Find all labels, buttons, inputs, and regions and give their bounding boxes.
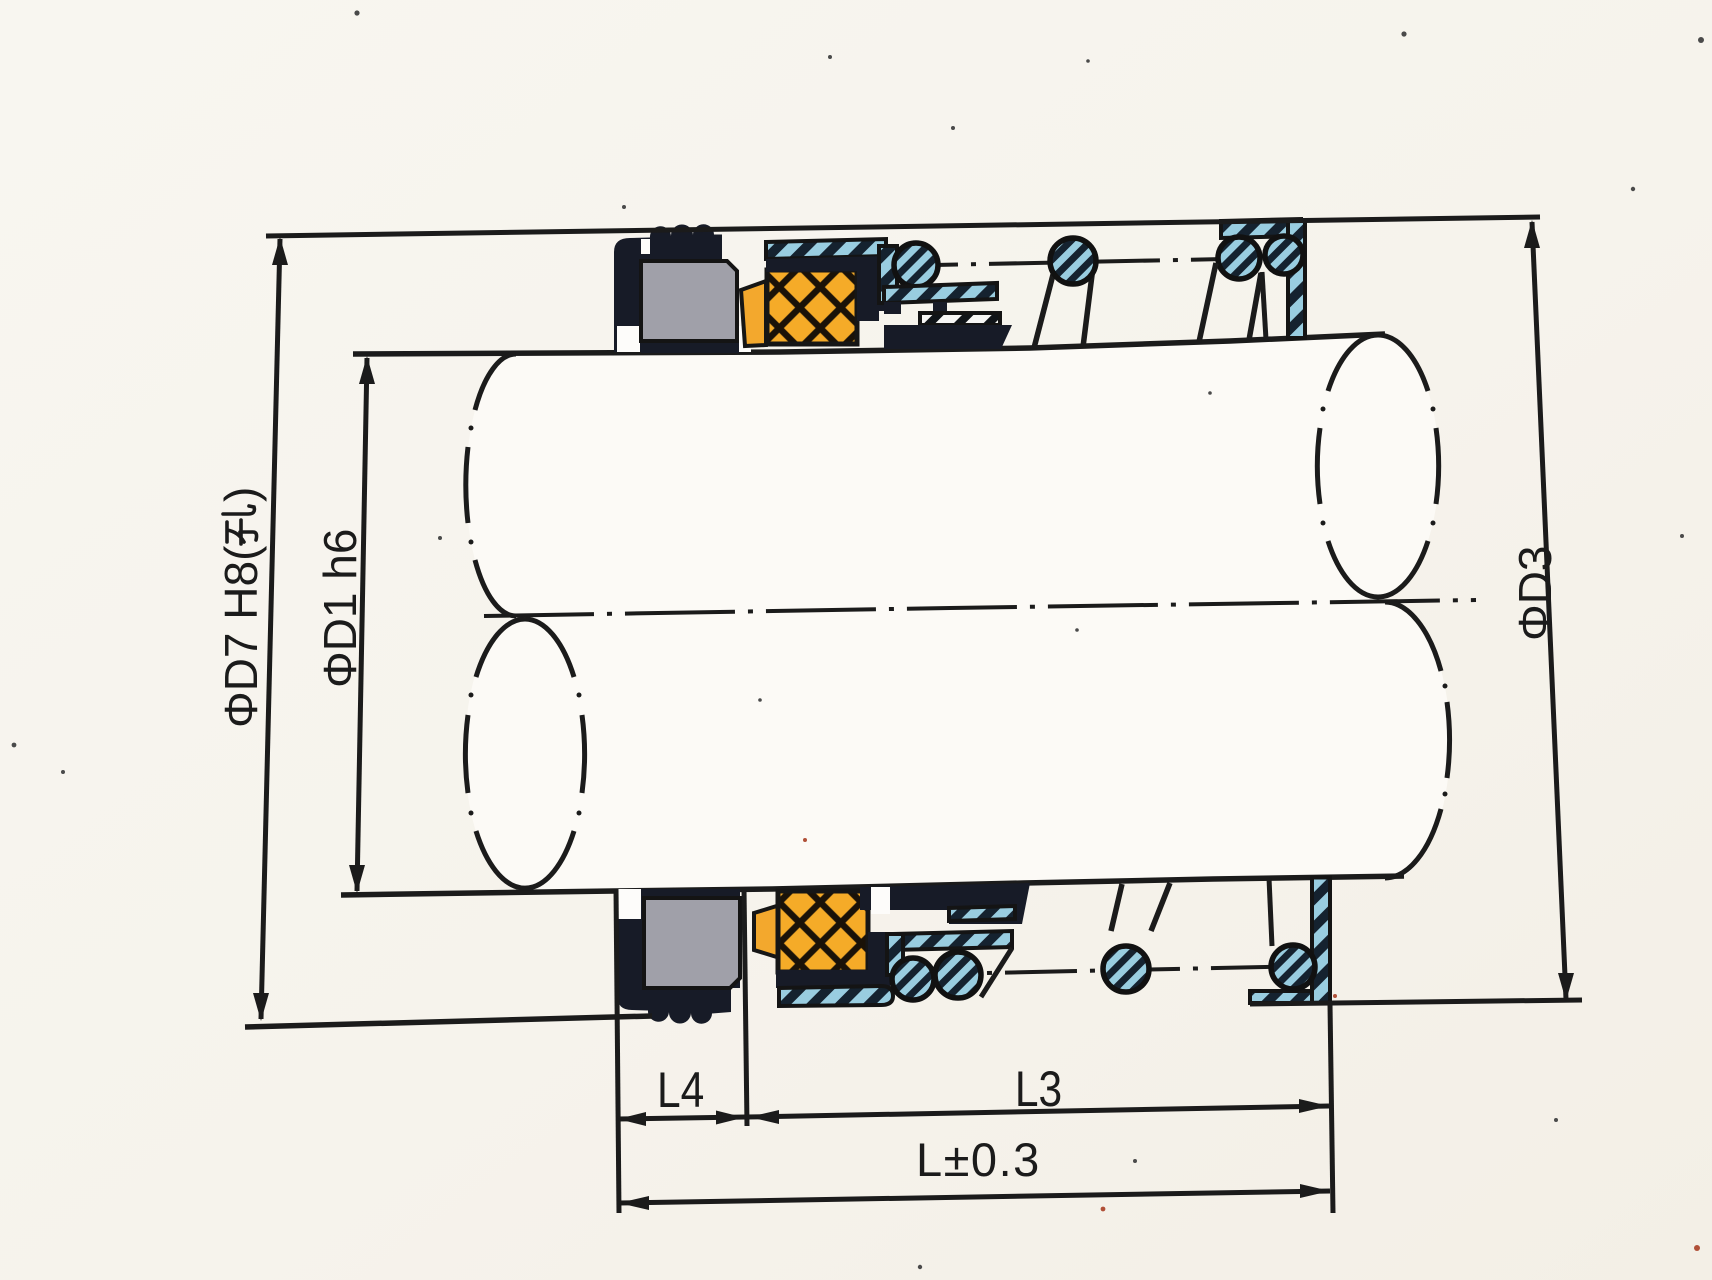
svg-text:ΦD1 h6: ΦD1 h6 (314, 529, 366, 688)
svg-text:ΦD7 H8(: ΦD7 H8( (215, 545, 267, 728)
svg-text:L±0.3: L±0.3 (916, 1133, 1041, 1186)
svg-text:L4: L4 (657, 1062, 704, 1118)
svg-text:): ) (215, 487, 267, 502)
svg-text:ΦD3: ΦD3 (1509, 545, 1561, 641)
svg-text:L3: L3 (1015, 1061, 1062, 1117)
